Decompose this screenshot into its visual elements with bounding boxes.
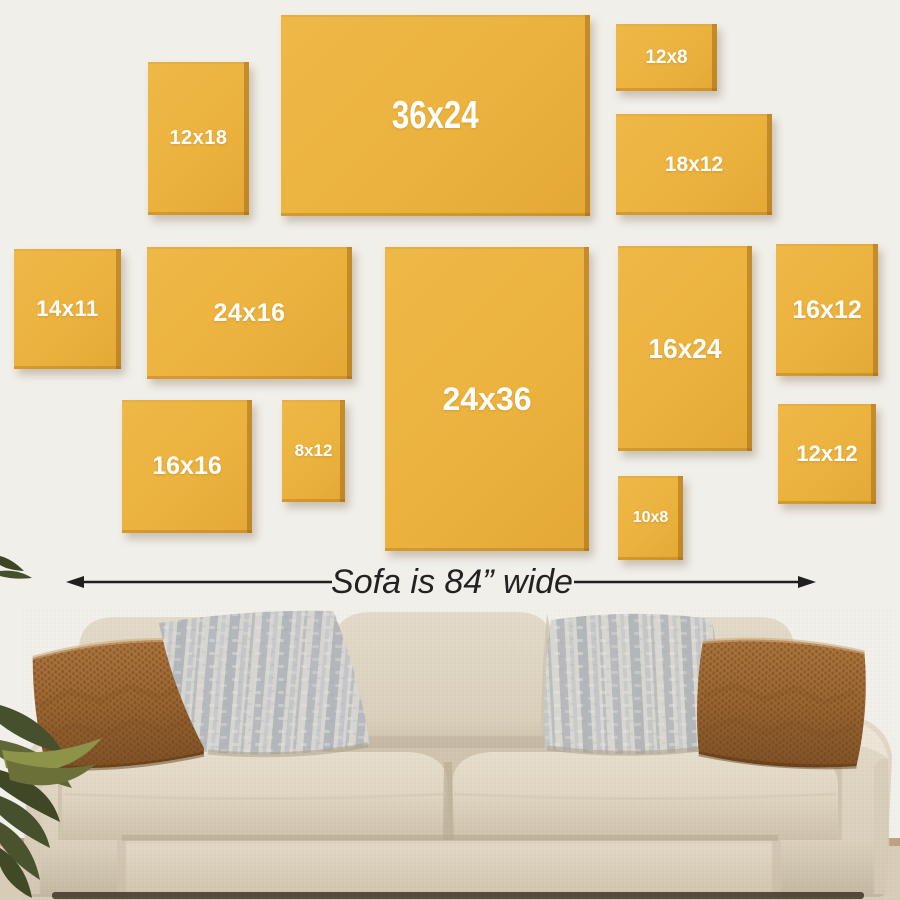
svg-text:Sofa is 84” wide: Sofa is 84” wide — [331, 563, 573, 601]
